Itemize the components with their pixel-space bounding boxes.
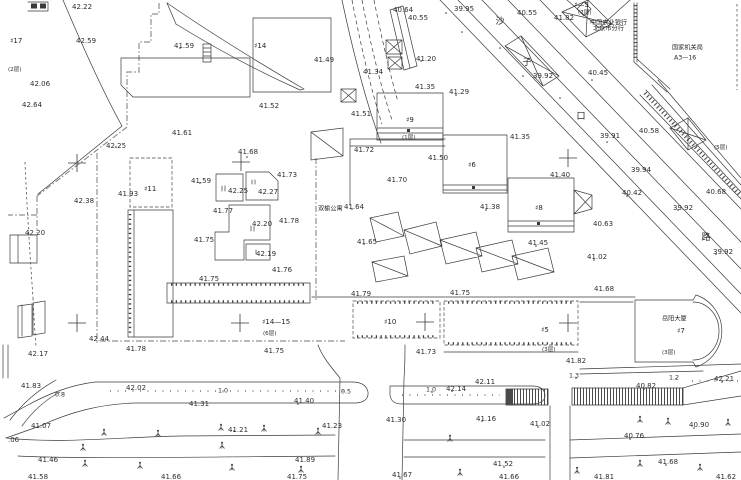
width-dimension-label: 1.3 [569, 373, 579, 380]
elevation-label: .06 [8, 436, 20, 444]
ne-slab-3 [670, 118, 706, 150]
building-name-label: 岳阳大厦 [662, 315, 687, 323]
floor-count-label: (7层) [578, 9, 592, 16]
elevation-label: 41.66 [499, 473, 520, 480]
width-dimension-label: 0.8 [55, 392, 65, 399]
width-dimension-label: 1.0 [218, 388, 228, 395]
avenue-ne-edge [508, 0, 741, 242]
elevation-label: 42.20 [252, 220, 272, 228]
street-name-char: 子 [522, 57, 531, 68]
elevation-label: 39.95 [454, 5, 474, 13]
elevation-label: 42.38 [74, 197, 94, 205]
elevation-label: 40.42 [622, 189, 642, 197]
elevation-label: 41.93 [118, 190, 138, 198]
building-number-label: ♯7 [677, 327, 685, 335]
corner-building-block [31, 4, 37, 9]
elevation-label: 40.55 [517, 9, 537, 17]
street-name-char: 口 [576, 112, 585, 122]
building-number-label: ♯8 [535, 204, 543, 212]
elevation-label: 42.06 [30, 80, 51, 88]
elevation-label: 41.29 [449, 88, 469, 96]
elevation-label: 42.22 [72, 3, 92, 11]
elevation-label: 39.92 [713, 248, 733, 256]
elevation-label: 41.73 [277, 171, 297, 179]
jiguan-compound-wall [634, 3, 670, 92]
elevation-label: 41.83 [21, 382, 41, 390]
elevation-label: 41.35 [415, 83, 435, 91]
building-name-label: A3—16 [674, 55, 696, 62]
elevation-label: 40.76 [624, 432, 645, 440]
elevation-label: 42.20 [25, 229, 45, 237]
parallelogram-shed [311, 128, 343, 160]
cross-road-east-edges [550, 406, 570, 480]
elevation-label: 40.55 [408, 14, 428, 22]
elevation-label: 41.20 [416, 55, 436, 63]
survey-map: 42.2242.5942.0642.6441.5941.6142.2541.93… [0, 0, 741, 480]
elevation-label: 41.31 [189, 400, 209, 408]
corner-building-block [40, 4, 46, 9]
elevation-label: 40.68 [706, 188, 726, 196]
building8-annex [574, 190, 592, 214]
floor-count-label: (3层) [662, 349, 676, 356]
elevation-label: 41.21 [228, 426, 248, 434]
elevation-label: 42.21 [714, 375, 734, 383]
elevation-label: 41.58 [28, 473, 48, 480]
tree-symbols [81, 416, 731, 476]
building-name-label: 北京市分行 [593, 25, 624, 33]
elevation-label: 41.59 [174, 42, 194, 50]
building5-balconies [448, 303, 574, 344]
building-number-label: ♯5 [541, 326, 549, 334]
elevation-label: 41.68 [594, 285, 614, 293]
elevation-label: 41.59 [191, 177, 211, 185]
elevation-label: 42.25 [228, 187, 248, 195]
elevation-label: 41.62 [716, 473, 736, 480]
building10-balconies [357, 303, 436, 337]
floor-count-label: (3层) [542, 346, 556, 353]
northeast-compounds-linework [567, 0, 737, 92]
slab14-15-outline [167, 283, 310, 303]
slab14-15-balconies [171, 285, 306, 302]
elevation-label: 41.64 [344, 203, 365, 211]
elevation-label: 41.75 [194, 236, 214, 244]
cross-road-west-edges [318, 345, 405, 480]
elevation-label: 41.34 [363, 68, 384, 76]
floor-count-label: (2层) [8, 66, 22, 73]
elevation-label: 40.64 [393, 6, 414, 14]
elevation-label: 41.75 [264, 347, 284, 355]
elevation-label: 41.07 [31, 422, 51, 430]
elevation-label: 39.92 [533, 72, 553, 80]
elevation-label: 41.89 [295, 456, 315, 464]
elevation-label: 41.82 [554, 14, 574, 22]
street-name-char: 沙 [495, 16, 504, 27]
building14-outline [121, 18, 331, 97]
width-dimension-label: 1.2 [669, 375, 679, 382]
elevation-label: 41.50 [428, 154, 448, 162]
elevation-label: 41.02 [530, 420, 550, 428]
building-number-label: ♯14 [254, 42, 267, 50]
elevation-label: 41.76 [272, 266, 293, 274]
floor-count-label: (5层) [714, 144, 728, 151]
building-name-label: 国家机关局 [672, 44, 703, 52]
building9-entry-mark [407, 129, 410, 132]
elevation-label: 41.49 [314, 56, 334, 64]
map-labels: 42.2242.5942.0642.6441.5941.6142.2541.93… [8, 1, 736, 480]
map-canvas: 42.2242.5942.0642.6441.5941.6142.2541.93… [0, 0, 741, 480]
elevation-label: 41.40 [294, 397, 314, 405]
avenue-center-dashes [352, 0, 398, 124]
building-name-label: 双榆公寓 [318, 205, 343, 213]
elevation-label: 41.51 [351, 110, 371, 118]
elevation-label: 42.14 [446, 385, 467, 393]
west-column-building [128, 210, 173, 337]
building-number-label: ♯11 [144, 185, 156, 193]
elevation-label: 41.78 [279, 217, 299, 225]
building-number-label: ♯9 [406, 116, 414, 124]
elevation-label: 41.52 [493, 460, 513, 468]
elevation-label: 41.73 [416, 348, 436, 356]
elevation-label: 42.17 [28, 350, 48, 358]
elevation-label: 41.78 [126, 345, 146, 353]
building5-outline [444, 301, 578, 345]
elevation-label: 41.72 [354, 146, 374, 154]
elevation-label: 41.23 [322, 422, 342, 430]
elevation-label: 42.27 [258, 188, 278, 196]
elevation-label: 39.94 [631, 166, 652, 174]
elevation-label: 42.19 [256, 250, 276, 258]
elevation-label: 41.67 [392, 471, 412, 479]
elevation-label: 42.25 [106, 142, 126, 150]
elevation-label: 41.61 [172, 129, 192, 137]
elevation-label: 42.59 [76, 37, 96, 45]
elevation-label: 41.45 [528, 239, 548, 247]
elevation-label: 41.82 [566, 357, 586, 365]
retaining-strip-lines [640, 80, 741, 199]
central-compound-linework [97, 18, 345, 343]
yueyang-north-walk [580, 297, 635, 302]
south-roads-linework [4, 345, 741, 480]
elevation-label: 40.90 [689, 421, 709, 429]
yueyang-front-walk [580, 364, 741, 374]
elevation-label: 41.02 [587, 253, 607, 261]
elevation-label: 41.70 [387, 176, 407, 184]
elevation-label: 42.02 [126, 384, 146, 392]
building-number-label: ♯—5 [574, 1, 589, 9]
building-number-label: ♯10 [384, 318, 396, 326]
elevation-label: 40.82 [636, 382, 656, 390]
elevation-label: 41.35 [510, 133, 530, 141]
elevation-label: 41.81 [594, 473, 614, 480]
building8-entry-mark [537, 222, 540, 225]
elevation-label: 41.75 [450, 289, 470, 297]
elevation-label: 39.91 [600, 132, 620, 140]
elevation-label: 41.40 [550, 171, 570, 179]
width-dimension-label: 0.5 [341, 389, 351, 396]
road-edge [38, 0, 122, 194]
building-number-label: ♯17 [10, 37, 22, 45]
elevation-label: 41.38 [480, 203, 500, 211]
elevation-label: 41.30 [386, 416, 406, 424]
median-hatch-2 [572, 388, 683, 405]
elevation-label: 41.79 [351, 290, 371, 298]
stairs-symbol [203, 44, 211, 62]
elevation-label: 40.63 [593, 220, 613, 228]
elevation-label: 41.68 [238, 148, 258, 156]
floor-count-label: (1层) [402, 134, 416, 141]
elevation-label: 41.16 [476, 415, 497, 423]
elevation-label: 42.64 [22, 101, 43, 109]
elevation-label: 41.68 [658, 458, 678, 466]
elevation-label: 39.92 [673, 204, 693, 212]
elevation-label: 41.77 [213, 207, 233, 215]
width-dimension-label: 1.0 [426, 387, 436, 394]
floor-count-label: (6层) [263, 330, 277, 337]
shed-outline [10, 235, 37, 263]
elevation-label: 41.75 [199, 275, 219, 283]
elevation-label: 41.52 [259, 102, 279, 110]
building6-entry-mark [472, 186, 475, 189]
street-name-char: 路 [701, 231, 710, 243]
elevation-label: 42.44 [89, 335, 110, 343]
building-number-label: ♯6 [468, 161, 476, 169]
building11-outline [130, 158, 172, 207]
building10-outline [353, 301, 440, 338]
elevation-label: 40.45 [588, 69, 608, 77]
elevation-label: 41.46 [38, 456, 59, 464]
median-south-lines [18, 452, 741, 458]
left-edge-wall [3, 345, 8, 378]
elevation-label: 41.75 [287, 473, 307, 480]
footpath [25, 162, 36, 346]
median-hatch-1-cap [506, 389, 513, 405]
elevation-label: 42.11 [475, 378, 495, 386]
elevation-label: 41.65 [357, 238, 377, 246]
elevation-label: 40.58 [639, 127, 659, 135]
elevation-label: 41.66 [161, 473, 182, 480]
survey-crosses [68, 149, 577, 332]
bike-sheds [370, 212, 554, 282]
sw-shed-outline [18, 301, 45, 338]
building-number-label: ♯14—15 [262, 318, 290, 326]
